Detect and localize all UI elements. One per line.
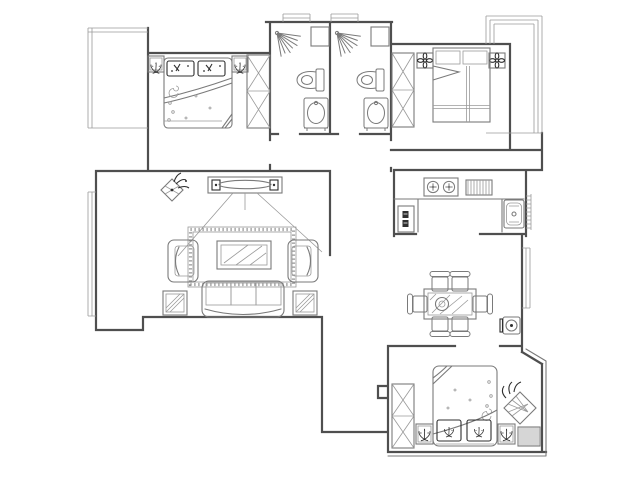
hatched-window [518, 427, 540, 446]
wardrobe-icon [392, 53, 414, 127]
refrigerator-icon [398, 206, 414, 232]
bay-window-living [88, 192, 96, 316]
coffee-table-icon [217, 241, 271, 269]
washbasin-icon [304, 98, 328, 131]
stove-icon [424, 178, 458, 196]
room-bathroom-2 [335, 27, 389, 131]
bed-icon [433, 366, 497, 446]
nightstand-icon [416, 424, 433, 444]
side-table-icon [293, 291, 317, 315]
sofa-icon [202, 281, 284, 317]
duct-icon [371, 27, 389, 46]
washbasin-icon [364, 98, 388, 131]
sink-icon [504, 200, 524, 228]
room-living [161, 173, 322, 317]
tv-projection-lines [178, 193, 322, 256]
bay-window-master [88, 28, 148, 128]
chair-icon [450, 272, 470, 292]
room-bedroom-3 [392, 366, 540, 448]
floor-plan-page [0, 0, 640, 485]
dining-window [522, 248, 530, 308]
rug [188, 227, 296, 287]
plate-icon [436, 298, 449, 311]
double-bed-icon [164, 58, 232, 128]
bathroom-window [283, 14, 310, 22]
nightstand-icon [498, 424, 515, 444]
side-table-icon [163, 291, 187, 315]
floor-plan-canvas [0, 0, 640, 485]
shower-icon [335, 31, 360, 56]
room-bedroom-2 [392, 48, 505, 127]
nightstand-icon [232, 56, 248, 73]
room-master-bedroom [148, 55, 270, 128]
chair-icon [450, 317, 470, 337]
duct-icon [311, 27, 329, 46]
toilet-icon [357, 69, 384, 91]
wardrobe-icon [247, 55, 270, 128]
toilet-icon [297, 69, 324, 91]
bed-icon [433, 48, 490, 122]
tv-icon [219, 180, 271, 188]
nightstand-icon [489, 53, 505, 68]
shower-icon [275, 31, 300, 56]
fridge-label-marks [403, 211, 409, 227]
room-kitchen [394, 178, 524, 232]
balcony [486, 16, 542, 133]
tv-unit-icon [208, 177, 282, 193]
dining-table-icon [424, 289, 476, 319]
plant-icon [161, 173, 189, 201]
room-bathroom-1 [275, 27, 329, 131]
chair-icon [430, 272, 450, 292]
wardrobe-icon [392, 384, 414, 448]
chair-icon [430, 317, 450, 337]
armchair-icon [168, 240, 198, 282]
plant-icon [502, 382, 536, 424]
room-dining [408, 272, 521, 337]
vent-hatch-icon [466, 180, 492, 195]
nightstand-icon [417, 53, 433, 68]
water-heater-icon [500, 317, 520, 334]
bathroom-window [331, 14, 358, 22]
nightstand-icon [148, 56, 164, 73]
